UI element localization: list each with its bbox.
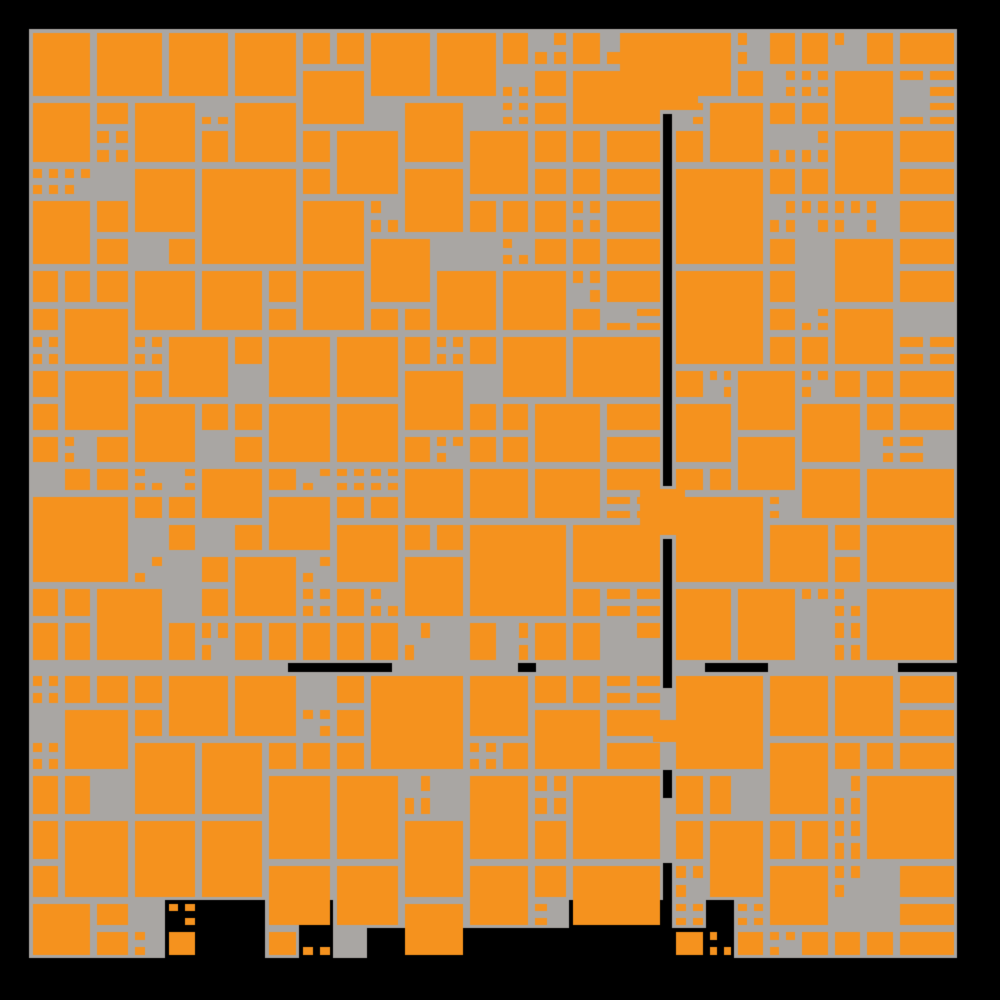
square-pattern-canvas xyxy=(0,0,1000,1000)
artwork xyxy=(0,0,1000,1000)
